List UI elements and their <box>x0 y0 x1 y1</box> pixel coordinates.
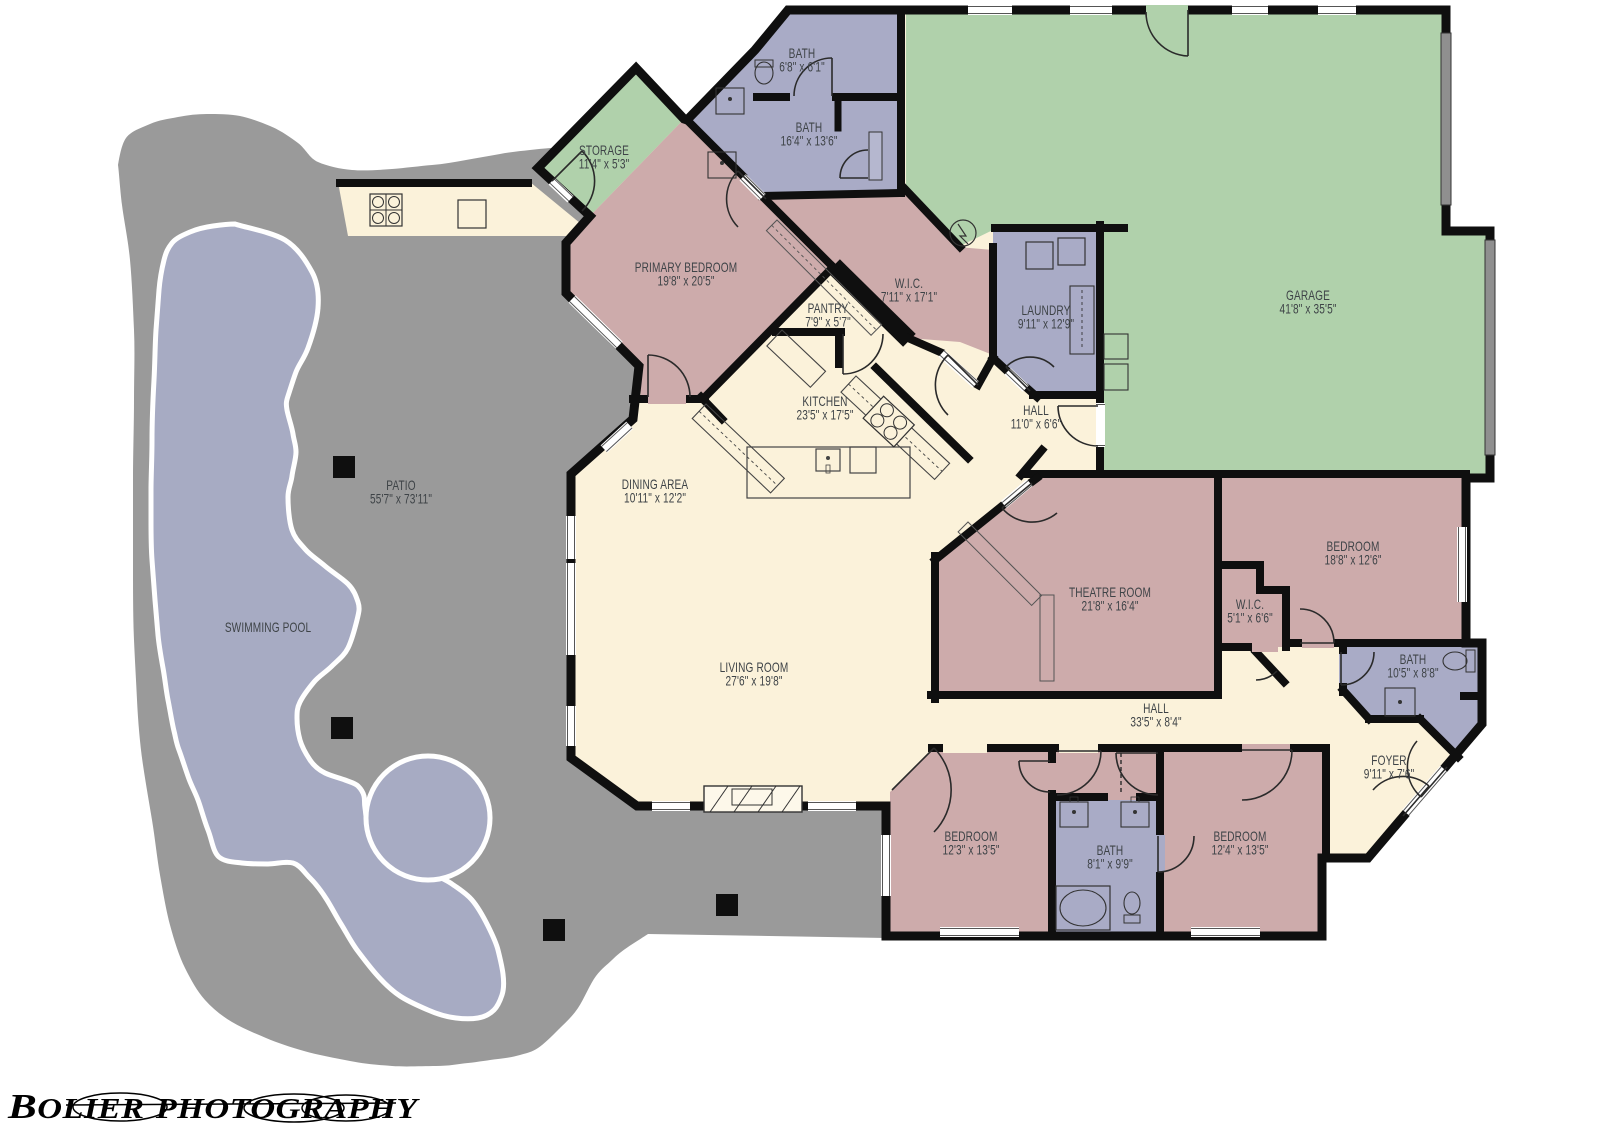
svg-text:BEDROOM18'8" x 12'6": BEDROOM18'8" x 12'6" <box>1324 538 1381 568</box>
svg-text:BEDROOM12'3" x 13'5": BEDROOM12'3" x 13'5" <box>942 828 999 858</box>
svg-text:SWIMMING POOL: SWIMMING POOL <box>225 619 311 635</box>
svg-text:BEDROOM12'4" x 13'5": BEDROOM12'4" x 13'5" <box>1211 828 1268 858</box>
svg-text:GARAGE41'8" x 35'5": GARAGE41'8" x 35'5" <box>1279 287 1336 317</box>
svg-text:LAUNDRY9'11" x 12'9": LAUNDRY9'11" x 12'9" <box>1018 302 1074 332</box>
svg-text:KITCHEN23'5" x 17'5": KITCHEN23'5" x 17'5" <box>796 393 853 423</box>
svg-text:DINING AREA10'11" x 12'2": DINING AREA10'11" x 12'2" <box>622 476 689 506</box>
svg-text:LIVING ROOM27'6" x 19'8": LIVING ROOM27'6" x 19'8" <box>720 659 789 689</box>
svg-text:STORAGE11'4" x 5'3": STORAGE11'4" x 5'3" <box>579 142 630 172</box>
svg-text:FOYER9'11" x 7'6": FOYER9'11" x 7'6" <box>1364 752 1415 782</box>
svg-text:PANTRY7'9" x 5'7": PANTRY7'9" x 5'7" <box>805 300 851 330</box>
